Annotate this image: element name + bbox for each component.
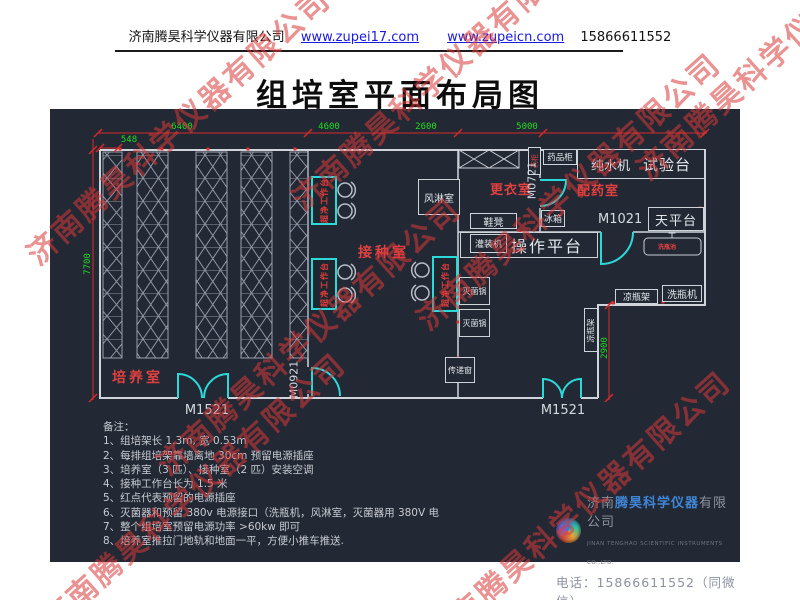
fridge: 冰箱 bbox=[541, 210, 565, 227]
company-logo bbox=[556, 518, 581, 543]
room-label-dispensing: 配药室 bbox=[577, 180, 619, 199]
dim-2600: 2600 bbox=[411, 122, 441, 132]
note-item-1: 1、组培架长 1.3m, 宽 0.53m bbox=[103, 434, 439, 448]
door-label-m1521-right: M1521 bbox=[533, 403, 593, 418]
door-m0921 bbox=[312, 368, 340, 396]
header-divider bbox=[115, 50, 623, 52]
test-bench-unit: 纯水机 试验台 bbox=[577, 149, 705, 179]
header-phone: 15866611552 bbox=[580, 30, 671, 45]
header-link-zupei17[interactable]: www.zupei17.com bbox=[301, 30, 419, 45]
dim-548: 548 bbox=[116, 135, 142, 145]
door-m1021 bbox=[601, 232, 633, 264]
room-label-culture: 培养室 bbox=[112, 367, 163, 387]
note-item-8: 8、培养室推拉门地轨和地面一平，方便小推车推送. bbox=[103, 534, 439, 548]
dim-7700: 7700 bbox=[83, 246, 93, 282]
balance-table: 天平台 bbox=[648, 207, 704, 231]
page-header: 济南腾昊科学仪器有限公司 www.zupei17.com www.zupeicn… bbox=[0, 26, 800, 45]
room-label-inoculation: 接种室 bbox=[358, 242, 409, 262]
note-item-4: 4、接种工作台长为 1.5 米 bbox=[103, 477, 439, 491]
clean-bench-2: 超净工作台 bbox=[311, 258, 337, 310]
pure-water-machine: 纯水机 bbox=[591, 155, 630, 174]
header-link-zupeicn[interactable]: www.zupeicn.com bbox=[447, 30, 564, 45]
wash-sink: 洗瓶池 bbox=[658, 242, 676, 251]
door-label-m1021: M1021 bbox=[598, 212, 642, 227]
sterilizer-1: 灭菌锅 bbox=[459, 277, 490, 305]
medicine-cabinet: 药品柜 bbox=[543, 149, 577, 165]
header-company: 济南腾昊科学仪器有限公司 bbox=[129, 30, 285, 45]
footer-company-info: 济南腾昊科学仪器有限公司 JINAN TENGHAO SCIENTIFIC IN… bbox=[556, 492, 740, 600]
note-item-3: 3、培养室（3 匹）、接种室（2 匹）安装空调 bbox=[103, 463, 439, 477]
note-item-6: 6、灭菌器和预留 380v 电源接口（洗瓶机，风淋室，灭菌器用 380V 电 bbox=[103, 506, 439, 520]
cad-canvas: 风淋室 药品柜 药柜 纯水机 试验台 天平台 冰箱 鞋凳 操作平台 灌装机 洗瓶… bbox=[50, 109, 740, 562]
door-m1521-left bbox=[178, 374, 228, 398]
footer-company-cn: 济南腾昊科学仪器有限公司 bbox=[587, 496, 727, 530]
filling-machine: 灌装机 bbox=[470, 234, 507, 253]
dim-4600: 4600 bbox=[314, 122, 344, 132]
dim-6400: 6400 bbox=[167, 122, 197, 132]
culture-racks bbox=[103, 152, 308, 358]
dim-2900: 2900 bbox=[600, 330, 610, 366]
bottle-cooling-rack-h: 凉瓶架 bbox=[615, 289, 658, 304]
dim-5000: 5000 bbox=[512, 122, 542, 132]
bottle-cooling-rack-v: 凉瓶架 bbox=[584, 308, 598, 352]
door-label-m0921: M0921 bbox=[287, 359, 301, 399]
pass-through-window: 传递窗 bbox=[445, 357, 475, 383]
notes: 备注： 1、组培架长 1.3m, 宽 0.53m 2、每排组培架靠墙离地 30c… bbox=[103, 420, 439, 549]
locker-cabinets bbox=[459, 150, 519, 168]
note-item-7: 7、整个组培室预留电源功率 >60kw 即可 bbox=[103, 520, 439, 534]
shoe-bench: 鞋凳 bbox=[470, 213, 517, 229]
footer-brand-text: 济南腾昊科学仪器有限公司 JINAN TENGHAO SCIENTIFIC IN… bbox=[587, 492, 740, 568]
footer-phone: 电话：15866611552（同微信） bbox=[556, 572, 740, 600]
note-item-2: 2、每排组培架靠墙离地 30cm 预留电源插座 bbox=[103, 449, 439, 463]
notes-title: 备注： bbox=[103, 420, 439, 434]
door-label-m1521-left: M1521 bbox=[177, 403, 237, 418]
page: 济南腾昊科学仪器有限公司 www.zupei17.com www.zupeicn… bbox=[0, 0, 800, 600]
footer-company-en: JINAN TENGHAO SCIENTIFIC INSTRUMENTS CO.… bbox=[587, 541, 723, 566]
bottle-washer: 洗瓶机 bbox=[662, 285, 702, 302]
clean-bench-3: 超净工作台 bbox=[432, 256, 458, 312]
test-bench: 试验台 bbox=[643, 154, 691, 175]
clean-bench-1: 超净工作台 bbox=[311, 176, 337, 225]
footer-brand-row: 济南腾昊科学仪器有限公司 JINAN TENGHAO SCIENTIFIC IN… bbox=[556, 492, 740, 568]
door-m0721 bbox=[540, 180, 566, 206]
door-m1521-right bbox=[543, 379, 581, 398]
air-shower-room: 风淋室 bbox=[418, 179, 460, 215]
sterilizer-2: 灭菌锅 bbox=[459, 309, 490, 337]
note-item-5: 5、红点代表预留的电源插座 bbox=[103, 491, 439, 505]
door-label-m0721: M0721 bbox=[525, 152, 538, 208]
